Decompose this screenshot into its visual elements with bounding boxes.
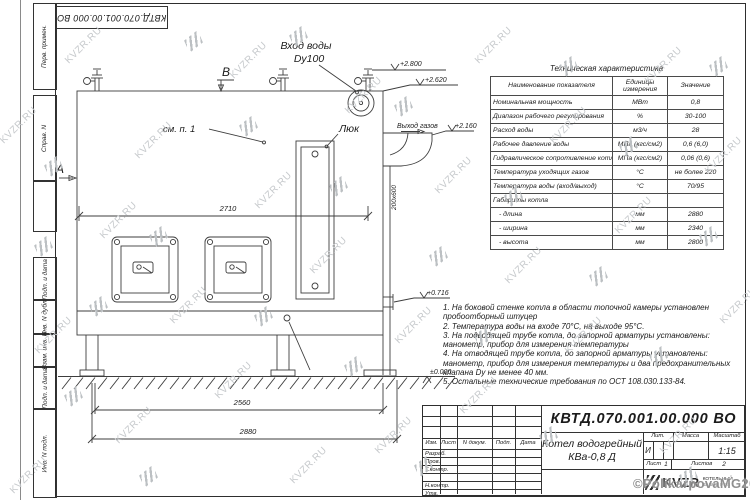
spec-cell: 2800 (668, 236, 724, 250)
title-block-designation: КВТД.070.001.00.000 ВО (541, 406, 746, 432)
spec-header: Значение (668, 77, 724, 96)
tb-lit-label: Лит. (643, 433, 673, 439)
margin-stamp-sprav-n: Справ. N (33, 95, 57, 182)
spec-table: Наименование показателя Единицы измерени… (490, 76, 724, 250)
spec-cell (668, 194, 724, 208)
top-corner-designation: КВТД.070.001.00.000 ВО (57, 13, 166, 23)
note-item: 4. На отводящей трубе котла, до запорной… (443, 349, 743, 377)
spec-cell: не более 220 (668, 166, 724, 180)
margin-stamp-inv-dubl: Инв. N дубл. (33, 299, 57, 335)
margin-stamp-inv-podl: Инв. N подл. (33, 408, 57, 498)
spec-cell: мм (613, 222, 668, 236)
tb-col-izm: Изм. (423, 440, 440, 446)
tb-line (643, 441, 746, 442)
drawing-sheet: KVZR.RUKVZR.RUKVZR.RUKVZR.RUKVZR.RUKVZR.… (0, 0, 750, 500)
title-block-product-name: Котел водогрейный КВа-0,8 Д (541, 432, 643, 469)
tb-line (663, 441, 664, 459)
spec-row: - ширинамм2340 (491, 222, 724, 236)
margin-stamp-vzam-inv: Взам. инв. N (33, 333, 57, 368)
margin-stamp-podp-data-1: Подп. и дата (33, 257, 57, 301)
top-corner-stamp: КВТД.070.001.00.000 ВО (56, 6, 168, 29)
spec-cell: 2880 (668, 208, 724, 222)
spec-cell: - ширина (491, 222, 613, 236)
technical-notes: 1. На боковой стенке котла в области топ… (443, 303, 743, 387)
note-item: 3. На подводящей трубе котла, до запорно… (443, 331, 743, 350)
spec-row: Гидравлическое сопротивление котлаМПа (к… (491, 152, 724, 166)
spec-row: Расход водым3/ч28 (491, 124, 724, 138)
spec-header: Наименование показателя (491, 77, 613, 96)
tb-scale-label: Масштаб (708, 433, 746, 439)
tb-row-razrab: Разраб. (425, 451, 446, 457)
spec-cell: Рабочее давление воды (491, 138, 613, 152)
tb-col-ndokum: N докум. (457, 440, 492, 446)
margin-stamp-empty (33, 180, 57, 232)
spec-row: Габариты котла (491, 194, 724, 208)
spec-cell: Температура воды (вход/выход) (491, 180, 613, 194)
spec-row: Рабочее давление водыМПа (кгс/см2)0,6 (6… (491, 138, 724, 152)
spec-cell: 70/95 (668, 180, 724, 194)
spec-header: Единицы измерения (613, 77, 668, 96)
tb-row-nkontr: Н.контр. (425, 483, 450, 489)
note-item: 5. Остальные технические требования по О… (443, 377, 743, 386)
tb-row-utv: Утв. (425, 491, 438, 497)
spec-cell: МВт (613, 96, 668, 110)
spec-cell: м3/ч (613, 124, 668, 138)
spec-row: Номинальная мощностьМВт0,8 (491, 96, 724, 110)
tb-sheets: Листов 2 (671, 459, 746, 469)
tb-sheet: Лист 1 (643, 459, 671, 469)
note-item: 1. На боковой стенке котла в области топ… (443, 303, 743, 322)
tb-col-podp: Подп. (492, 440, 515, 446)
spec-cell: Диапазон рабочего регулирования (491, 110, 613, 124)
margin-stamp-perv-primen: Перв. примен. (33, 3, 57, 90)
product-name-line2: КВа-0,8 Д (568, 451, 615, 464)
copyright-watermark: ©PolikarpovaMG2021 (633, 476, 750, 491)
tb-line (492, 406, 493, 494)
tb-line (653, 441, 654, 459)
spec-cell: Расход воды (491, 124, 613, 138)
spec-table-title: Техническая характеристика (490, 64, 723, 73)
note-item: 2. Температура воды на входе 70°С, на вы… (443, 322, 743, 331)
spec-cell: мм (613, 236, 668, 250)
spec-cell: Гидравлическое сопротивление котла (491, 152, 613, 166)
margin-stamp-podp-data-2: Подп. и дата (33, 366, 57, 410)
spec-cell: 28 (668, 124, 724, 138)
tb-col-list: Лист (440, 440, 457, 446)
spec-cell: МПа (кгс/см2) (613, 152, 668, 166)
spec-cell: Номинальная мощность (491, 96, 613, 110)
spec-cell (613, 194, 668, 208)
tb-lit-value: И (643, 446, 653, 455)
spec-row: Температура воды (вход/выход)°С70/95 (491, 180, 724, 194)
tb-mass-label: Масса (673, 433, 708, 439)
tb-row-prov: Пров. (425, 459, 440, 465)
spec-cell: МПа (кгс/см2) (613, 138, 668, 152)
spec-cell: мм (613, 208, 668, 222)
spec-cell: 2340 (668, 222, 724, 236)
spec-header-row: Наименование показателя Единицы измерени… (491, 77, 724, 96)
spec-cell: 0,06 (0,6) (668, 152, 724, 166)
spec-cell: - длина (491, 208, 613, 222)
spec-cell: °С (613, 166, 668, 180)
spec-cell: Габариты котла (491, 194, 613, 208)
spec-cell: °С (613, 180, 668, 194)
spec-row: Температура уходящих газов°Сне более 220 (491, 166, 724, 180)
spec-row: - длинамм2880 (491, 208, 724, 222)
spec-cell: Температура уходящих газов (491, 166, 613, 180)
tb-line (457, 406, 458, 494)
spec-cell: 30-100 (668, 110, 724, 124)
spec-row: - высотамм2800 (491, 236, 724, 250)
spec-row: Диапазон рабочего регулирования%30-100 (491, 110, 724, 124)
spec-cell: - высота (491, 236, 613, 250)
tb-col-data: Дата (515, 440, 541, 446)
spec-cell: % (613, 110, 668, 124)
tb-scale-value: 1:15 (708, 446, 746, 456)
tb-line (515, 406, 516, 494)
spec-cell: 0,8 (668, 96, 724, 110)
product-name-line1: Котел водогрейный (542, 438, 642, 451)
tb-row-tkontr: Т.контр. (425, 467, 448, 473)
spec-cell: 0,6 (6,0) (668, 138, 724, 152)
